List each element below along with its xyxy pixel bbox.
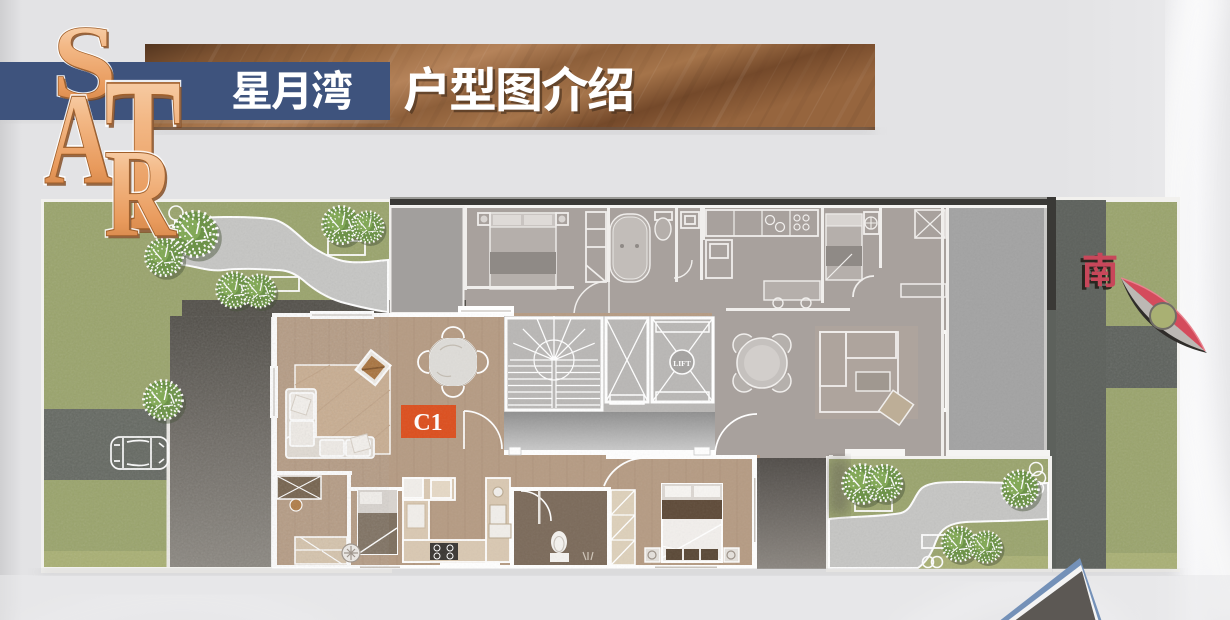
svg-text:R: R: [104, 122, 177, 264]
svg-text:A: A: [44, 66, 113, 211]
